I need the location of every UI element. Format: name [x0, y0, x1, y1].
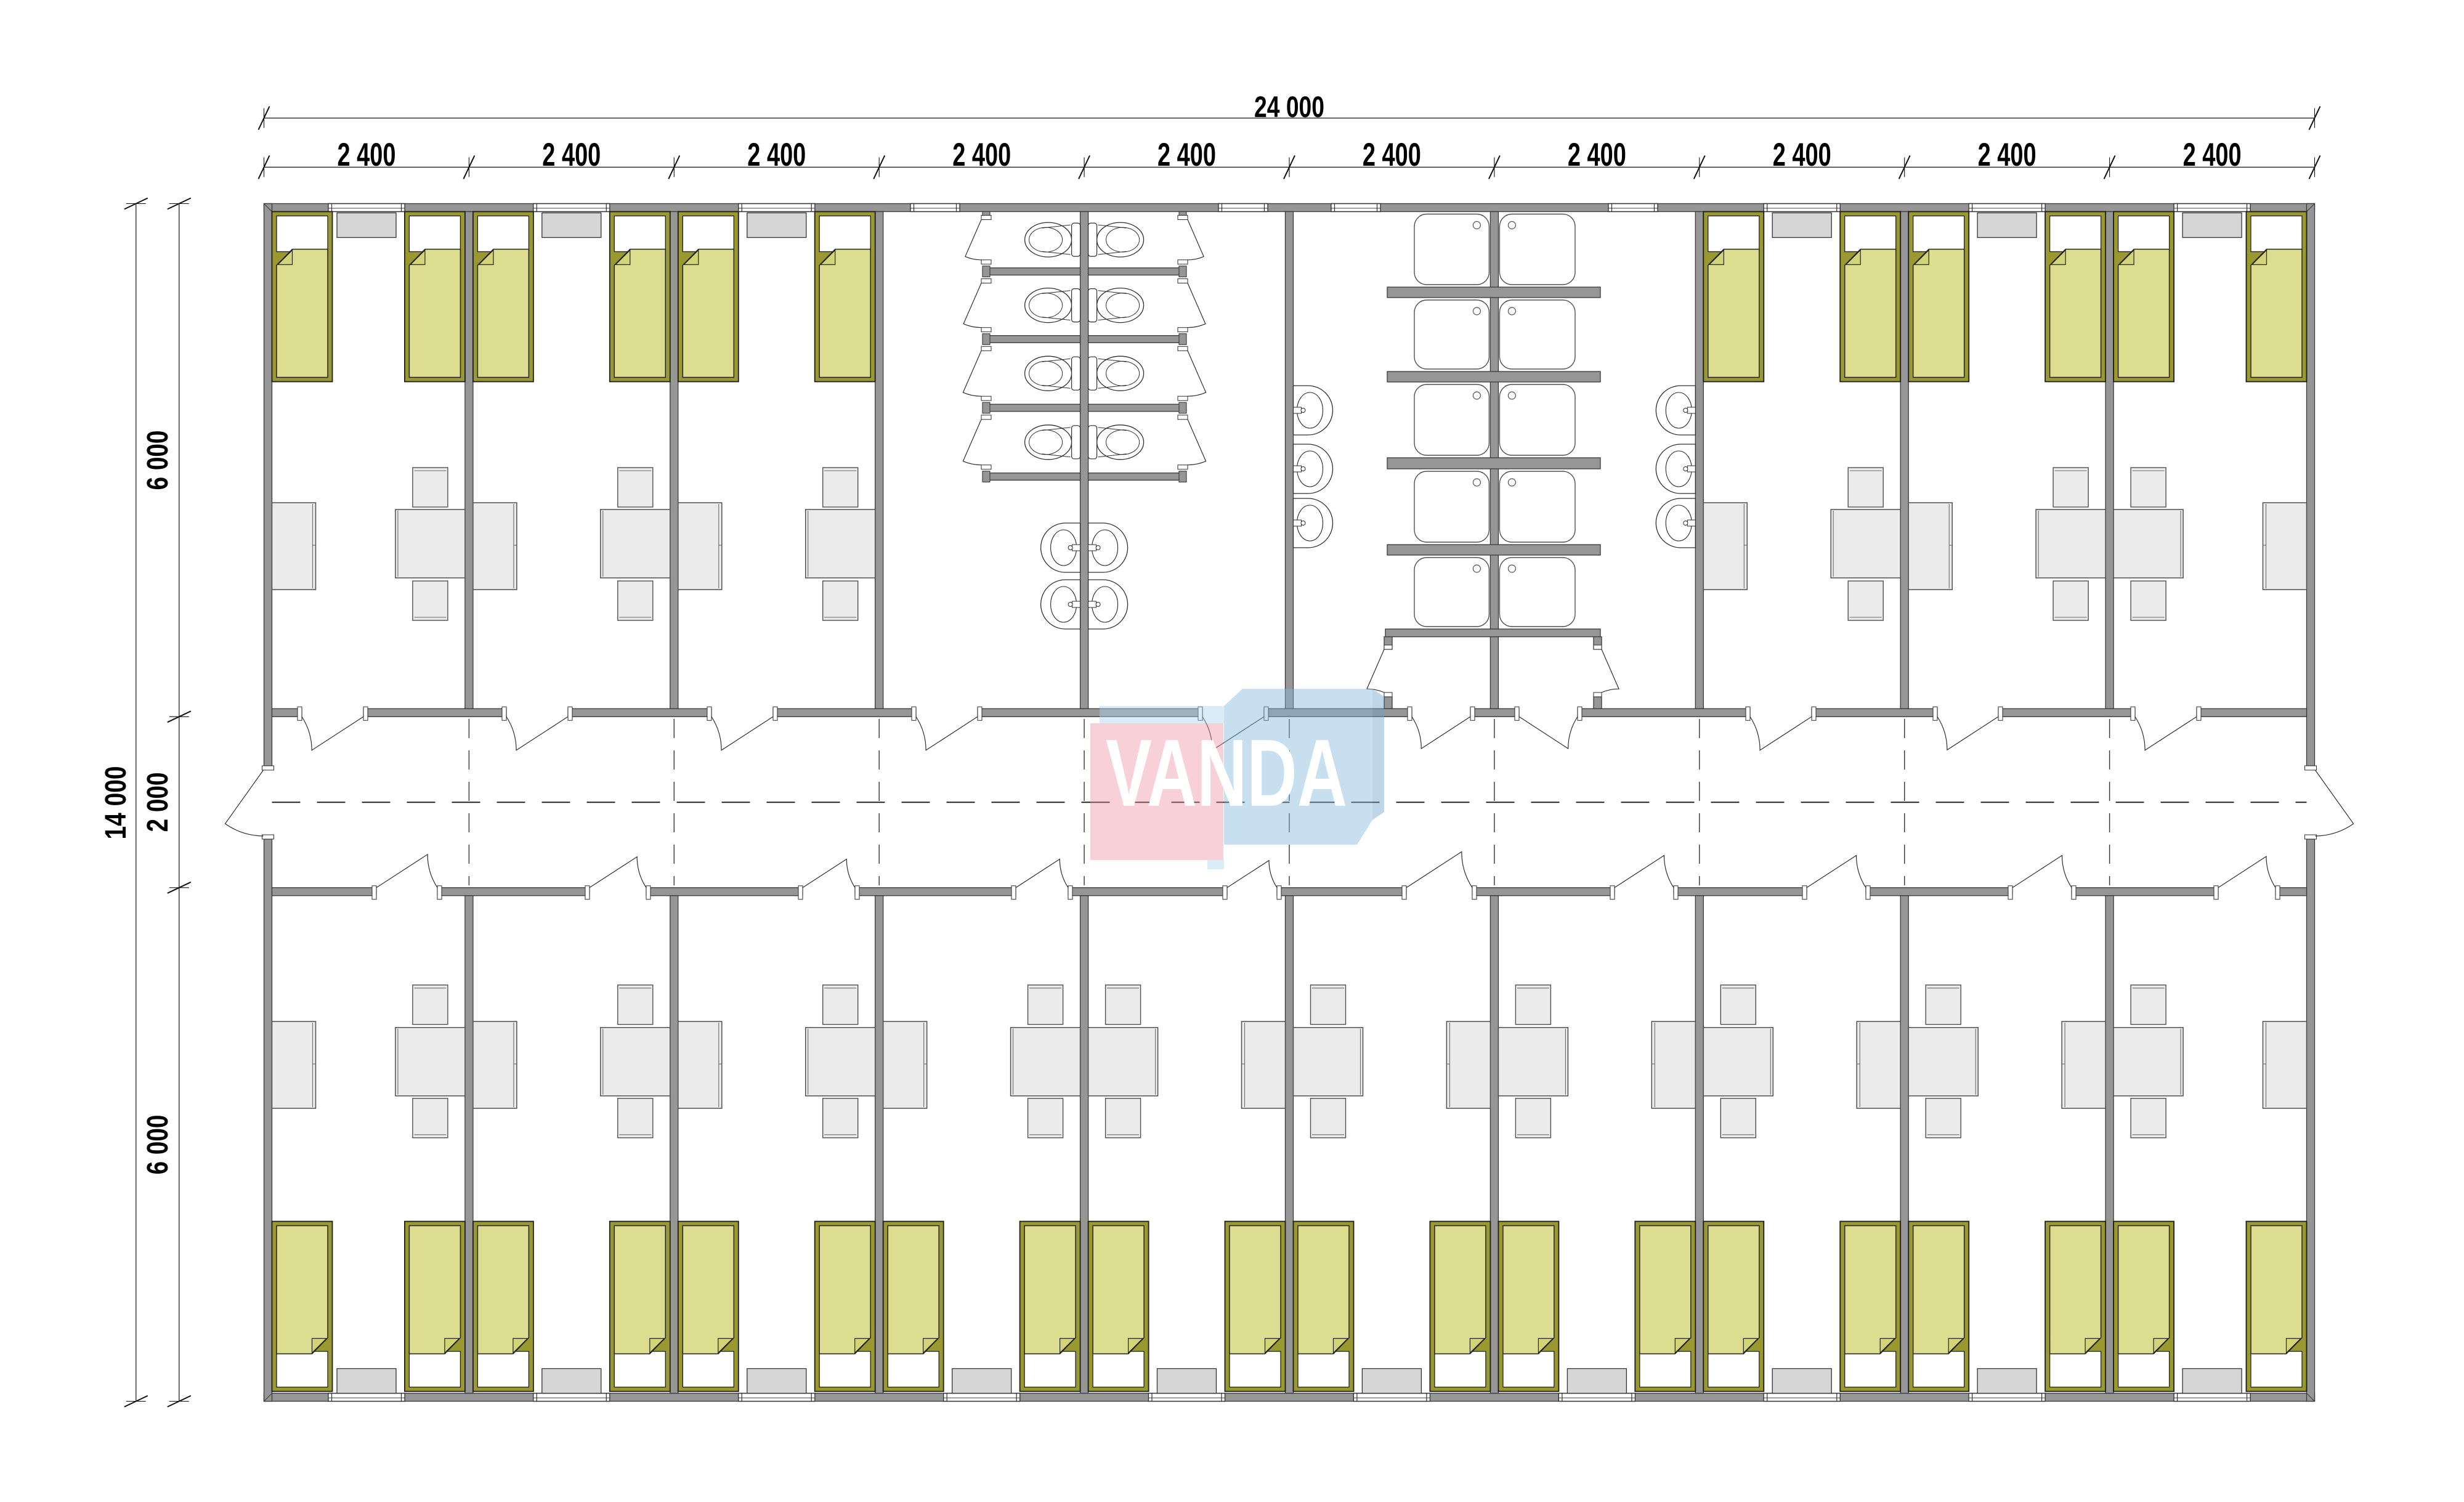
svg-text:6 000: 6 000 — [142, 1115, 174, 1175]
svg-text:2 400: 2 400 — [2183, 137, 2242, 173]
svg-text:14 000: 14 000 — [100, 766, 132, 840]
svg-text:2 400: 2 400 — [1363, 137, 1421, 173]
svg-text:2 400: 2 400 — [952, 137, 1011, 173]
svg-text:6 000: 6 000 — [142, 431, 174, 490]
svg-text:2 400: 2 400 — [1157, 137, 1216, 173]
svg-text:VANDA: VANDA — [1106, 720, 1347, 826]
svg-text:2 400: 2 400 — [1978, 137, 2036, 173]
svg-text:2 400: 2 400 — [747, 137, 806, 173]
svg-text:2 000: 2 000 — [142, 773, 174, 832]
svg-text:2 400: 2 400 — [338, 137, 396, 173]
svg-text:2 400: 2 400 — [1773, 137, 1831, 173]
svg-text:2 400: 2 400 — [1568, 137, 1626, 173]
svg-text:2 400: 2 400 — [542, 137, 601, 173]
svg-text:24 000: 24 000 — [1254, 91, 1324, 124]
